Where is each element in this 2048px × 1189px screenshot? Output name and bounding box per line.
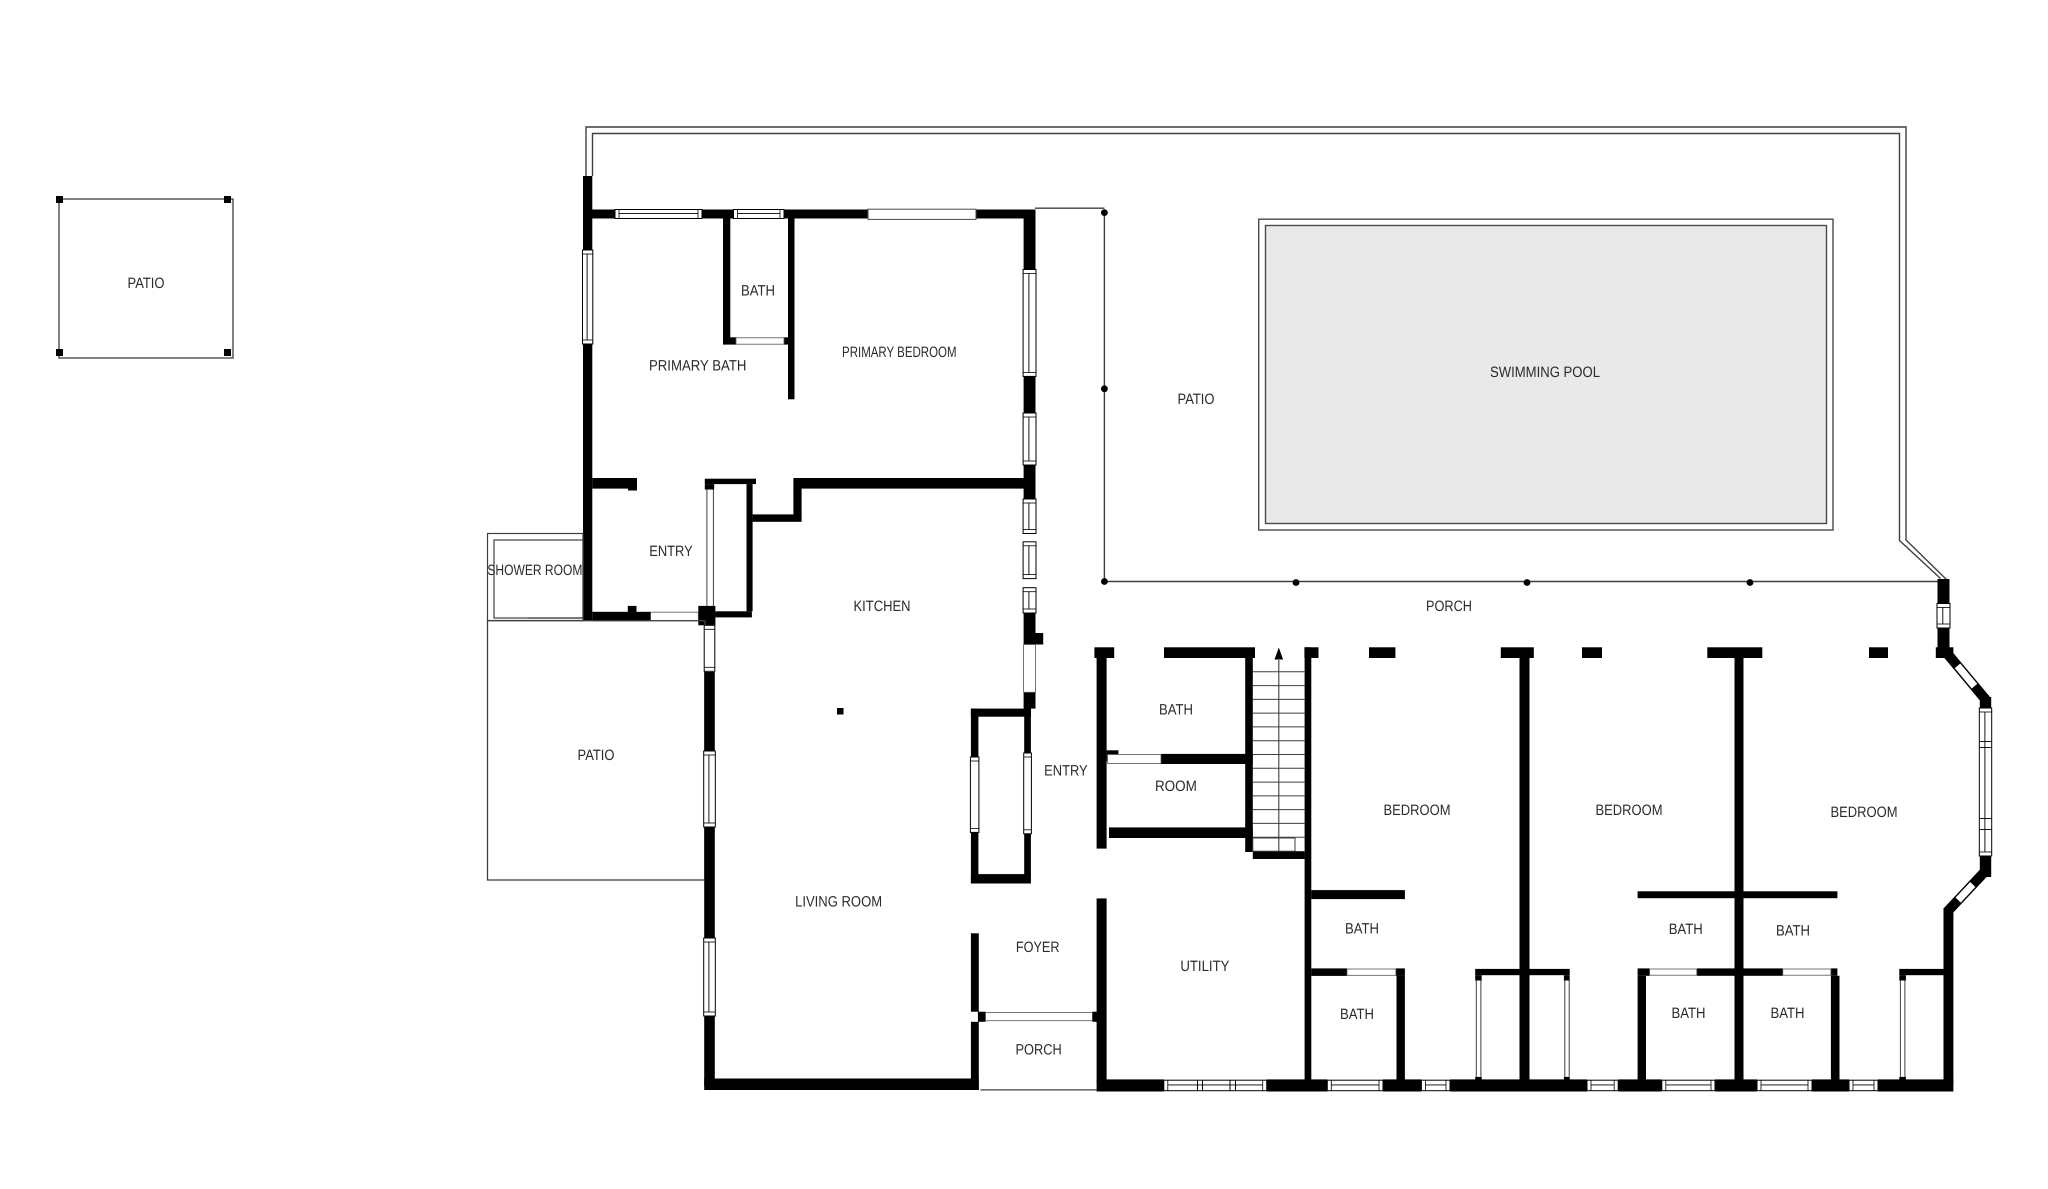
svg-text:UTILITY: UTILITY bbox=[1180, 958, 1229, 975]
svg-text:SHOWER ROOM: SHOWER ROOM bbox=[487, 562, 582, 579]
svg-text:LIVING ROOM: LIVING ROOM bbox=[795, 894, 882, 911]
svg-text:KITCHEN: KITCHEN bbox=[854, 598, 911, 615]
svg-text:BATH: BATH bbox=[1776, 923, 1810, 940]
svg-text:BEDROOM: BEDROOM bbox=[1831, 804, 1898, 821]
svg-text:FOYER: FOYER bbox=[1016, 939, 1060, 956]
svg-text:SWIMMING POOL: SWIMMING POOL bbox=[1490, 364, 1600, 381]
svg-text:PATIO: PATIO bbox=[128, 275, 165, 292]
svg-text:PORCH: PORCH bbox=[1016, 1042, 1062, 1059]
svg-text:BATH: BATH bbox=[741, 283, 775, 300]
svg-text:BATH: BATH bbox=[1340, 1006, 1374, 1023]
svg-text:BEDROOM: BEDROOM bbox=[1596, 802, 1663, 819]
svg-text:ENTRY: ENTRY bbox=[649, 543, 693, 560]
svg-text:PATIO: PATIO bbox=[578, 747, 615, 764]
svg-text:PRIMARY BEDROOM: PRIMARY BEDROOM bbox=[842, 344, 957, 361]
svg-text:ENTRY: ENTRY bbox=[1044, 763, 1088, 780]
svg-text:BATH: BATH bbox=[1345, 921, 1379, 938]
svg-text:PORCH: PORCH bbox=[1426, 598, 1472, 615]
svg-text:PATIO: PATIO bbox=[1178, 391, 1215, 408]
svg-text:BEDROOM: BEDROOM bbox=[1384, 802, 1451, 819]
svg-text:ROOM: ROOM bbox=[1155, 778, 1197, 795]
svg-text:PRIMARY BATH: PRIMARY BATH bbox=[649, 358, 746, 375]
svg-text:BATH: BATH bbox=[1672, 1005, 1706, 1022]
svg-text:BATH: BATH bbox=[1159, 702, 1193, 719]
svg-text:BATH: BATH bbox=[1771, 1005, 1805, 1022]
svg-text:BATH: BATH bbox=[1669, 921, 1703, 938]
